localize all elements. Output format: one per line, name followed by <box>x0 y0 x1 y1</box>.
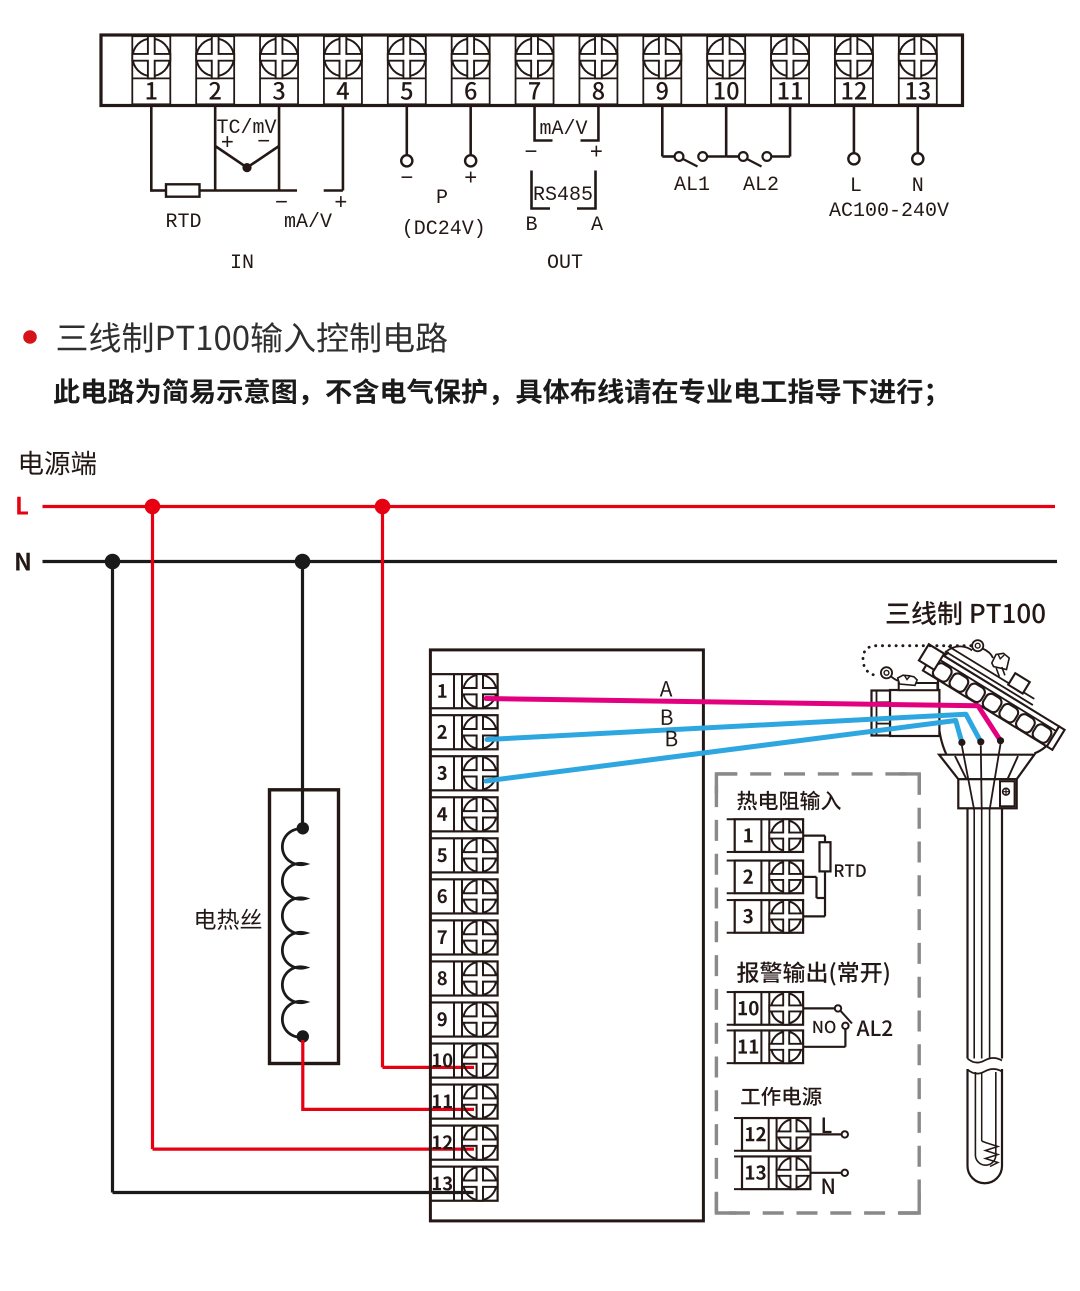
svg-text:B: B <box>525 214 537 237</box>
svg-text:−: − <box>524 141 537 166</box>
svg-text:RS485: RS485 <box>533 184 593 207</box>
svg-text:AL2: AL2 <box>743 174 779 197</box>
svg-text:−: − <box>400 167 413 192</box>
svg-text:+: + <box>334 191 347 216</box>
svg-text:(DC24V): (DC24V) <box>402 218 486 241</box>
svg-text:+: + <box>464 167 477 192</box>
svg-text:mA/V: mA/V <box>539 118 587 141</box>
svg-text:+: + <box>221 131 234 156</box>
svg-text:P: P <box>436 187 448 210</box>
svg-text:AC100-240V: AC100-240V <box>829 200 949 223</box>
svg-text:−: − <box>257 130 270 155</box>
svg-text:+: + <box>590 141 603 166</box>
svg-text:RTD: RTD <box>165 211 201 234</box>
svg-text:IN: IN <box>230 252 254 275</box>
svg-text:AL1: AL1 <box>674 174 710 197</box>
svg-text:A: A <box>591 214 603 237</box>
svg-text:L: L <box>850 175 862 198</box>
svg-text:OUT: OUT <box>547 252 583 275</box>
svg-text:N: N <box>912 175 924 198</box>
svg-text:mA/V: mA/V <box>284 211 332 234</box>
